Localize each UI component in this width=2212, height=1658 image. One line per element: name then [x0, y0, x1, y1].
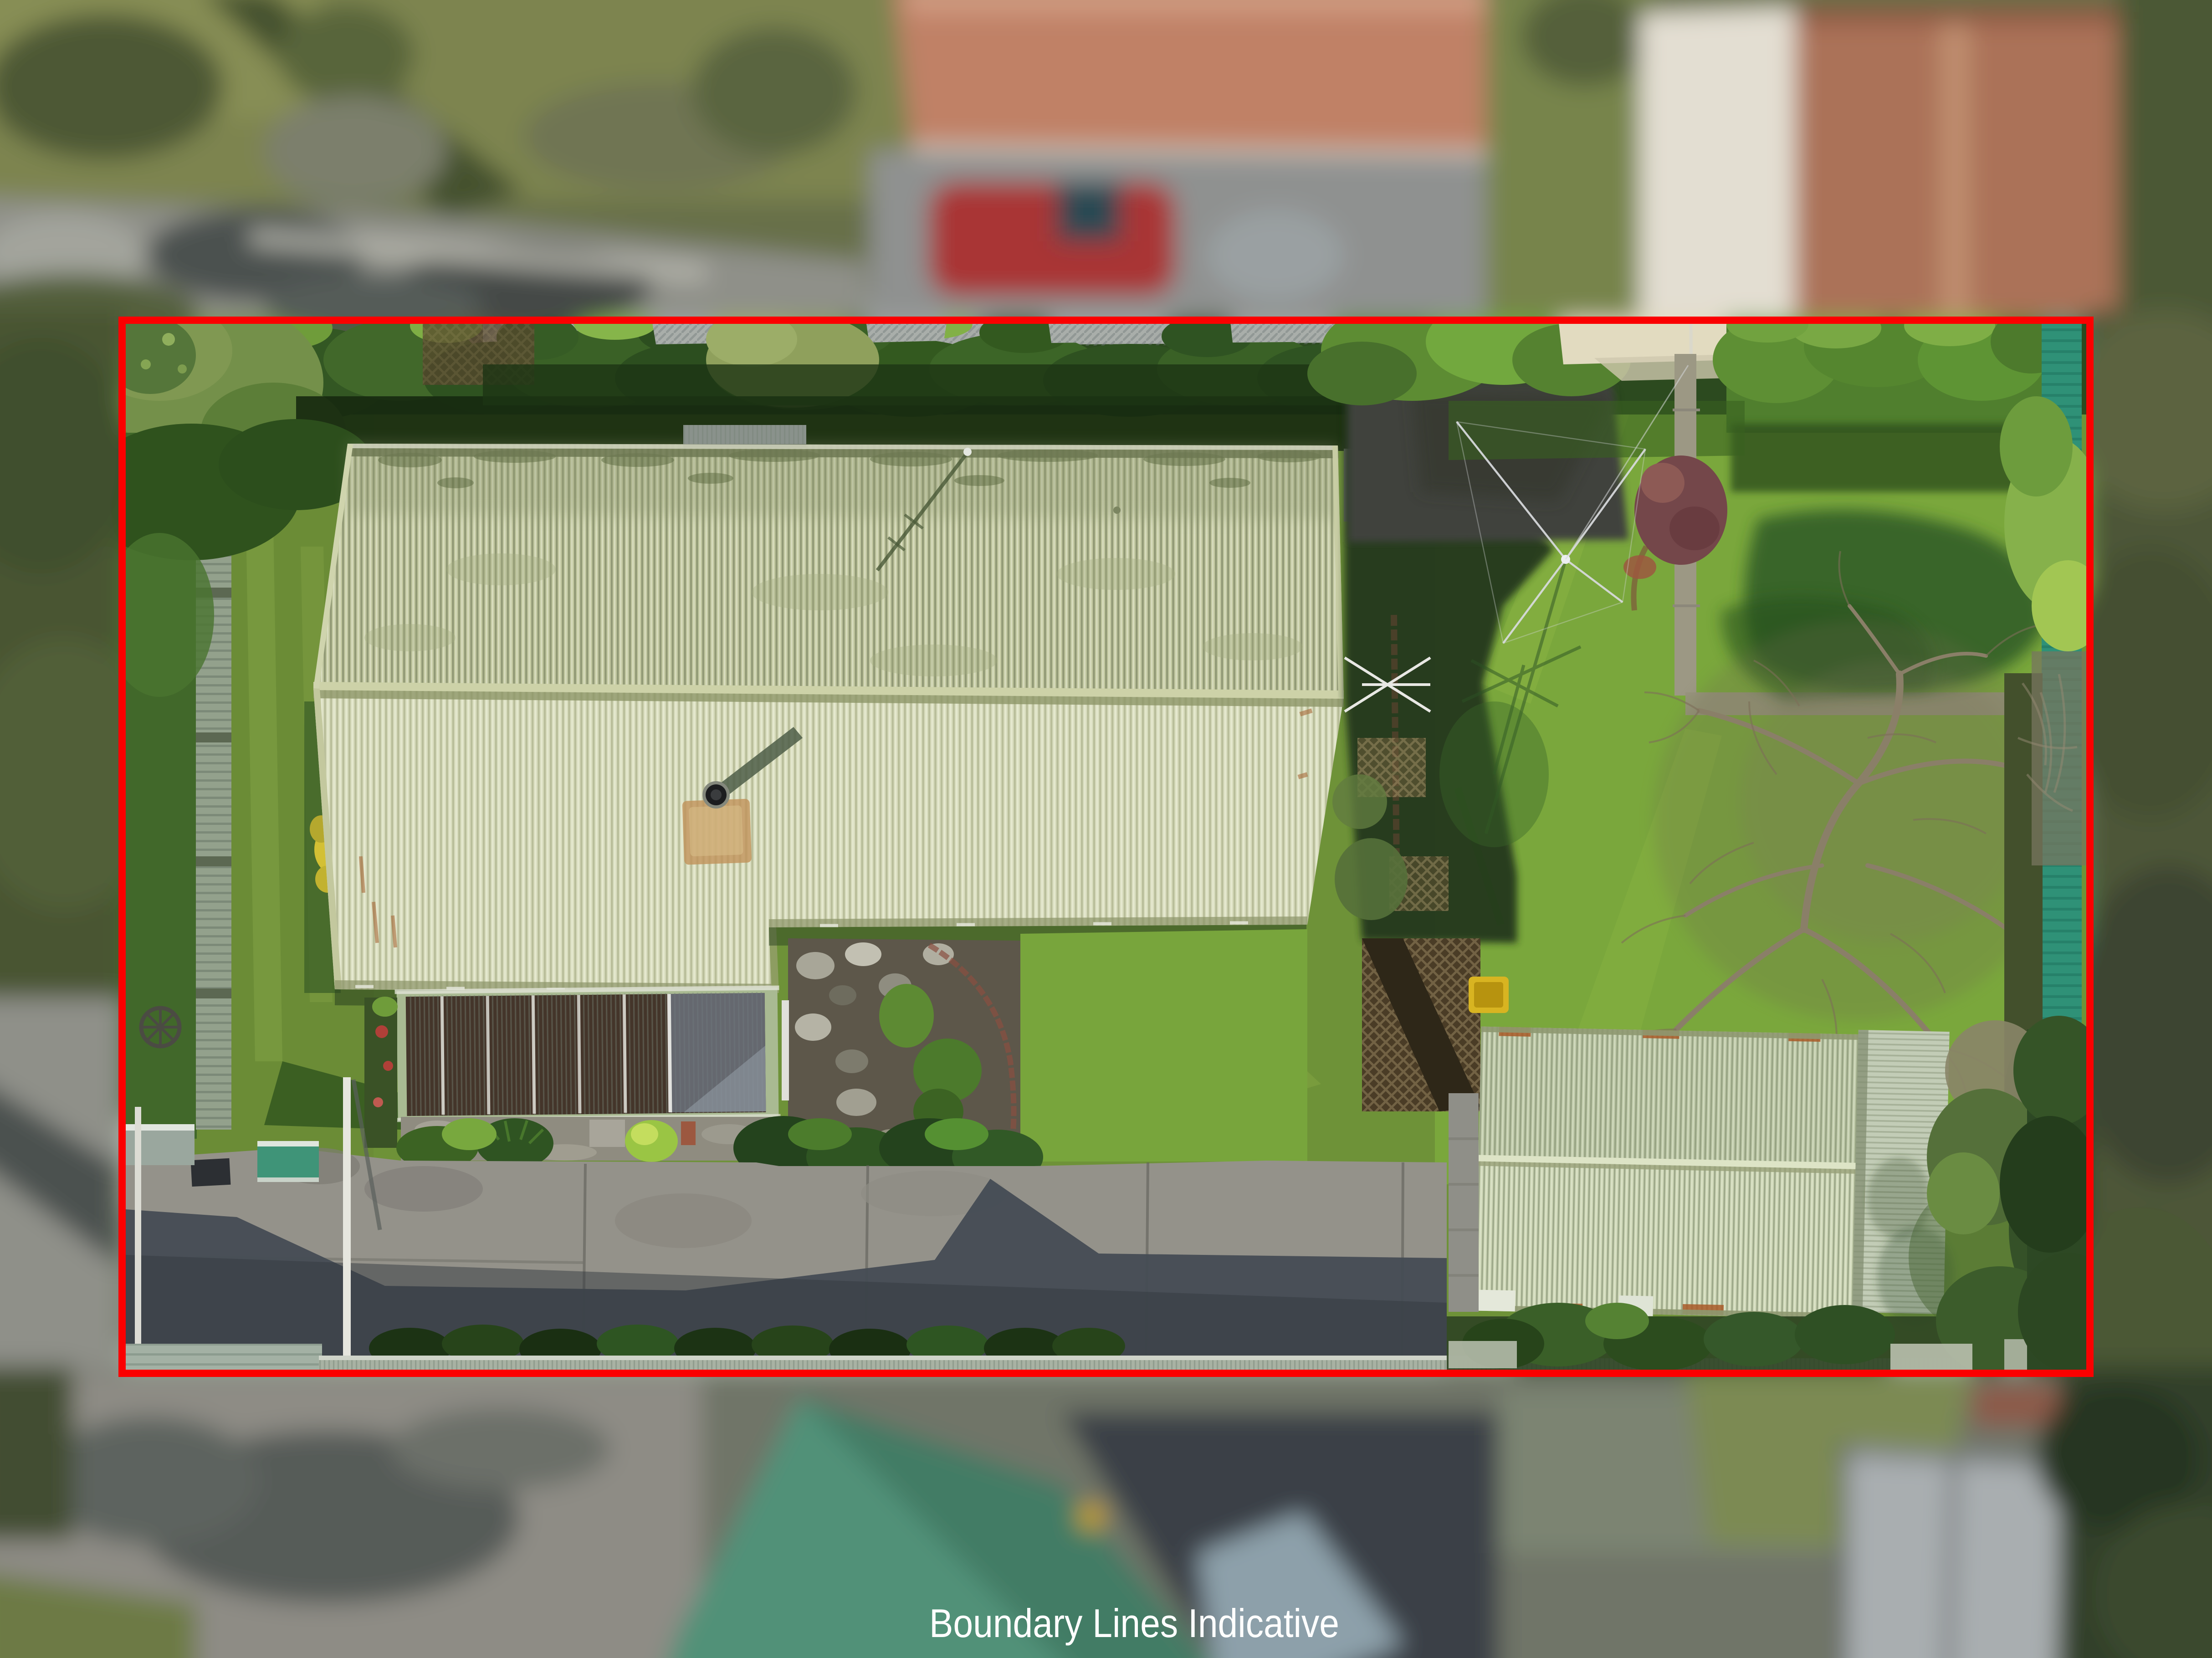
svg-text:Boundary Lines Indicative: Boundary Lines Indicative [929, 1601, 1339, 1646]
